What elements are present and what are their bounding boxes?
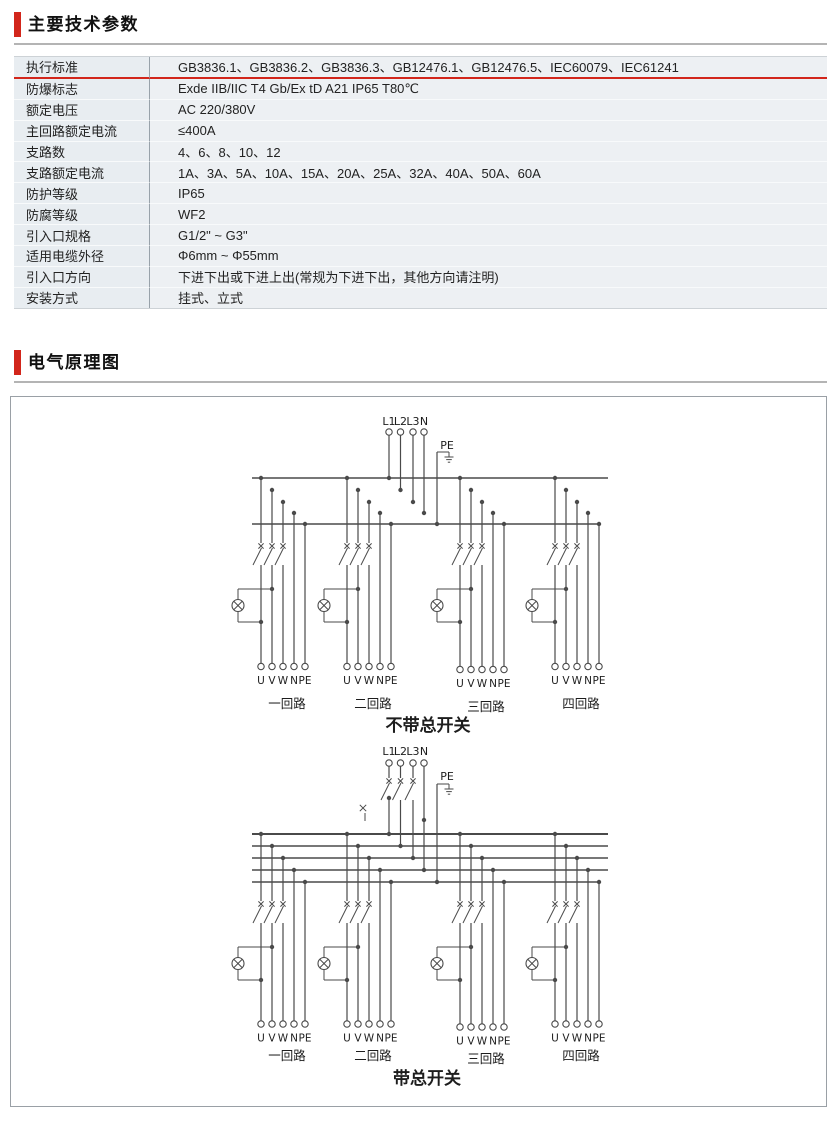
lamp-icon	[232, 958, 244, 970]
terminal-label: W	[572, 675, 583, 687]
junction-dot	[458, 620, 462, 624]
spec-row-8: 引入口规格G1/2" ~ G3"	[14, 225, 827, 246]
branch-circuit-1: UVWNPE一回路	[232, 476, 311, 711]
spec-row-4: 支路数4、6、8、10、12	[14, 142, 827, 163]
branch-caption: 四回路	[562, 696, 600, 711]
terminal-label: N	[584, 1033, 592, 1045]
terminal-circle	[457, 1024, 463, 1030]
terminal-label: W	[278, 1033, 289, 1045]
terminal-label: V	[268, 1033, 276, 1045]
section1-title: 主要技术参数	[28, 12, 139, 37]
terminal-label: W	[572, 1033, 583, 1045]
spec-value: G1/2" ~ G3"	[150, 225, 827, 246]
spec-label: 适用电缆外径	[14, 246, 150, 267]
spec-value: 下进下出或下进上出(常规为下进下出，其他方向请注明)	[150, 267, 827, 288]
terminal-circle	[302, 1021, 308, 1027]
datasheet-page: 主要技术参数 执行标准GB3836.1、GB3836.2、GB3836.3、GB…	[0, 0, 840, 1122]
terminal-circle	[501, 1024, 507, 1030]
breaker-switch-icon	[452, 834, 463, 1024]
terminal-label: U	[343, 675, 351, 687]
branch-circuit-2: UVWNPE二回路	[318, 476, 397, 711]
terminal-label: W	[477, 1036, 488, 1048]
schematic-panel: L1L2L3NPEUVWNPE一回路UVWNPE二回路UVWNPE三回路UVWN…	[10, 396, 827, 1107]
terminal-circle	[457, 666, 463, 672]
spec-label: 执行标准	[14, 57, 150, 79]
terminal-circle	[280, 1021, 286, 1027]
junction-dot	[411, 500, 415, 504]
pe-earth: PE	[435, 439, 454, 526]
terminal-label: U	[551, 675, 559, 687]
section2-title: 电气原理图	[28, 350, 121, 375]
lamp-icon	[526, 958, 538, 970]
spec-row-9: 适用电缆外径Φ6mm ~ Φ55mm	[14, 246, 827, 267]
spec-label: 额定电压	[14, 100, 150, 121]
breaker-switch-icon	[558, 490, 569, 663]
section2-rule	[14, 381, 827, 383]
main-breaker-switch-icon	[405, 766, 416, 858]
junction-dot	[422, 818, 426, 822]
breaker-switch-icon	[361, 502, 372, 663]
terminal-label: PE	[385, 675, 398, 687]
breaker-switch-icon	[264, 846, 275, 1021]
spec-row-5: 支路额定电流1A、3A、5A、10A、15A、20A、25A、32A、40A、5…	[14, 162, 827, 183]
main-switch-handle-icon	[360, 805, 366, 821]
spec-row-3: 主回路额定电流≤400A	[14, 121, 827, 142]
spec-value: WF2	[150, 204, 827, 225]
pe-earth: PE	[435, 770, 454, 884]
terminal-circle	[479, 666, 485, 672]
junction-dot	[435, 880, 439, 884]
terminal-circle	[258, 663, 264, 669]
breaker-switch-icon	[253, 478, 264, 663]
pe-label: PE	[440, 770, 454, 783]
spec-row-7: 防腐等级WF2	[14, 204, 827, 225]
breaker-switch-icon	[474, 502, 485, 666]
lamp-icon	[232, 600, 244, 612]
terminal-label: V	[467, 678, 475, 690]
terminal-circle	[574, 663, 580, 669]
spec-value: Exde IIB/IIC T4 Gb/Ex tD A21 IP65 T80℃	[150, 79, 827, 100]
lamp-icon	[431, 600, 443, 612]
spec-label: 引入口规格	[14, 225, 150, 246]
breaker-switch-icon	[253, 834, 264, 1021]
terminal-circle	[269, 663, 275, 669]
spec-value: 挂式、立式	[150, 288, 827, 308]
terminal-label: N	[290, 1033, 298, 1045]
terminal-label: PE	[498, 678, 511, 690]
branch-circuit-3: UVWNPE三回路	[431, 832, 510, 1066]
breaker-switch-icon	[350, 846, 361, 1021]
incoming-label: L3	[406, 415, 419, 428]
branch-circuit-4: UVWNPE四回路	[526, 476, 605, 711]
pe-label: PE	[440, 439, 454, 452]
terminal-label: U	[343, 1033, 351, 1045]
terminal-label: N	[290, 675, 298, 687]
terminal-circle	[410, 429, 416, 435]
indicator-lamp	[526, 587, 568, 624]
terminal-circle	[302, 663, 308, 669]
terminal-label: N	[489, 678, 497, 690]
terminal-label: PE	[593, 675, 606, 687]
junction-dot	[458, 978, 462, 982]
branch-caption: 二回路	[354, 1048, 392, 1063]
terminal-label: V	[354, 675, 362, 687]
spec-row-2: 额定电压AC 220/380V	[14, 100, 827, 121]
spec-value: IP65	[150, 183, 827, 204]
terminal-circle	[410, 760, 416, 766]
spec-table: 执行标准GB3836.1、GB3836.2、GB3836.3、GB12476.1…	[14, 56, 827, 309]
lamp-icon	[318, 600, 330, 612]
spec-label: 防爆标志	[14, 79, 150, 100]
terminal-circle	[563, 663, 569, 669]
terminal-circle	[468, 666, 474, 672]
branch-caption: 二回路	[354, 696, 392, 711]
junction-dot	[387, 796, 391, 800]
spec-label: 安装方式	[14, 288, 150, 308]
terminal-circle	[596, 663, 602, 669]
terminal-label: PE	[498, 1036, 511, 1048]
breaker-switch-icon	[339, 834, 350, 1021]
terminal-circle	[501, 666, 507, 672]
terminal-circle	[355, 1021, 361, 1027]
terminal-circle	[377, 1021, 383, 1027]
branch-circuit-2: UVWNPE二回路	[318, 832, 397, 1063]
diagram-caption: 不带总开关	[386, 715, 471, 736]
terminal-circle	[388, 1021, 394, 1027]
terminal-circle	[490, 666, 496, 672]
lamp-icon	[318, 958, 330, 970]
terminal-label: N	[584, 675, 592, 687]
junction-dot	[422, 868, 426, 872]
spec-label: 支路额定电流	[14, 162, 150, 183]
spec-label: 引入口方向	[14, 267, 150, 288]
spec-row-0: 执行标准GB3836.1、GB3836.2、GB3836.3、GB12476.1…	[14, 57, 827, 79]
terminal-circle	[386, 760, 392, 766]
breaker-switch-icon	[547, 834, 558, 1021]
indicator-lamp	[232, 945, 274, 982]
indicator-lamp	[232, 587, 274, 624]
branch-circuit-1: UVWNPE一回路	[232, 832, 311, 1063]
terminal-label: PE	[385, 1033, 398, 1045]
junction-dot	[259, 620, 263, 624]
earth-ground-icon	[445, 784, 454, 794]
terminal-label: U	[456, 678, 464, 690]
junction-dot	[345, 978, 349, 982]
junction-dot	[422, 511, 426, 515]
terminal-label: U	[257, 1033, 265, 1045]
terminal-circle	[377, 663, 383, 669]
terminal-label: W	[364, 1033, 375, 1045]
spec-value: ≤400A	[150, 121, 827, 142]
breaker-switch-icon	[452, 478, 463, 666]
spec-label: 主回路额定电流	[14, 121, 150, 142]
junction-dot	[553, 978, 557, 982]
terminal-circle	[468, 1024, 474, 1030]
terminal-label: PE	[299, 1033, 312, 1045]
indicator-lamp	[431, 587, 473, 624]
spec-value: GB3836.1、GB3836.2、GB3836.3、GB12476.1、GB1…	[150, 57, 827, 79]
indicator-lamp	[526, 945, 568, 982]
terminal-label: W	[477, 678, 488, 690]
junction-dot	[345, 620, 349, 624]
terminal-label: U	[551, 1033, 559, 1045]
breaker-switch-icon	[569, 502, 580, 663]
spec-value: 4、6、8、10、12	[150, 142, 827, 163]
terminal-label: U	[456, 1036, 464, 1048]
branch-caption: 一回路	[268, 696, 306, 711]
terminal-label: U	[257, 675, 265, 687]
junction-dot	[398, 488, 402, 492]
incoming-lines: L1L2L3N	[382, 415, 428, 515]
terminal-label: PE	[299, 675, 312, 687]
junction-dot	[411, 856, 415, 860]
terminal-circle	[479, 1024, 485, 1030]
section1-accent-bar	[14, 12, 21, 37]
junction-dot	[398, 844, 402, 848]
terminal-circle	[291, 663, 297, 669]
spec-value: Φ6mm ~ Φ55mm	[150, 246, 827, 267]
junction-dot	[553, 620, 557, 624]
breaker-switch-icon	[339, 478, 350, 663]
breaker-switch-icon	[474, 858, 485, 1024]
spec-value: 1A、3A、5A、10A、15A、20A、25A、32A、40A、50A、60A	[150, 162, 827, 183]
spec-label: 支路数	[14, 142, 150, 163]
terminal-circle	[355, 663, 361, 669]
breaker-switch-icon	[547, 478, 558, 663]
terminal-circle	[291, 1021, 297, 1027]
spec-label: 防护等级	[14, 183, 150, 204]
terminal-label: V	[268, 675, 276, 687]
incoming-label: L2	[394, 745, 407, 758]
breaker-switch-icon	[463, 846, 474, 1024]
terminal-label: V	[467, 1036, 475, 1048]
terminal-circle	[344, 1021, 350, 1027]
section1-rule	[14, 43, 827, 45]
section2-accent-bar	[14, 350, 21, 375]
spec-value: AC 220/380V	[150, 100, 827, 121]
incoming-label: L2	[394, 415, 407, 428]
junction-dot	[387, 832, 391, 836]
incoming-label: N	[420, 745, 428, 758]
breaker-switch-icon	[275, 502, 286, 663]
branch-caption: 一回路	[268, 1048, 306, 1063]
lamp-icon	[431, 958, 443, 970]
earth-ground-icon	[445, 452, 454, 462]
junction-dot	[387, 476, 391, 480]
breaker-switch-icon	[558, 846, 569, 1021]
spec-row-1: 防爆标志Exde IIB/IIC T4 Gb/Ex tD A21 IP65 T8…	[14, 79, 827, 100]
branch-circuit-4: UVWNPE四回路	[526, 832, 605, 1063]
terminal-label: W	[278, 675, 289, 687]
terminal-circle	[386, 429, 392, 435]
terminal-circle	[258, 1021, 264, 1027]
indicator-lamp	[318, 587, 360, 624]
terminal-circle	[574, 1021, 580, 1027]
diagram-no-main-switch: L1L2L3NPEUVWNPE一回路UVWNPE二回路UVWNPE三回路UVWN…	[232, 415, 608, 736]
main-breaker-switch-icon	[381, 766, 392, 834]
branch-caption: 三回路	[467, 1051, 505, 1066]
terminal-circle	[563, 1021, 569, 1027]
terminal-circle	[366, 663, 372, 669]
terminal-circle	[397, 760, 403, 766]
incoming-label: N	[420, 415, 428, 428]
lamp-icon	[526, 600, 538, 612]
terminal-label: V	[562, 1033, 570, 1045]
terminal-label: V	[354, 1033, 362, 1045]
branch-circuit-3: UVWNPE三回路	[431, 476, 510, 714]
junction-dot	[259, 978, 263, 982]
spec-row-10: 引入口方向下进下出或下进上出(常规为下进下出，其他方向请注明)	[14, 267, 827, 288]
incoming-label: L3	[406, 745, 419, 758]
indicator-lamp	[318, 945, 360, 982]
spec-label: 防腐等级	[14, 204, 150, 225]
diagram-with-main-switch: L1L2L3NPEUVWNPE一回路UVWNPE二回路UVWNPE三回路UVWN…	[232, 745, 608, 1089]
indicator-lamp	[431, 945, 473, 982]
terminal-label: N	[376, 1033, 384, 1045]
terminal-circle	[388, 663, 394, 669]
breaker-switch-icon	[264, 490, 275, 663]
diagram-caption: 带总开关	[393, 1068, 461, 1089]
terminal-circle	[280, 663, 286, 669]
terminal-circle	[421, 429, 427, 435]
branch-caption: 三回路	[467, 699, 505, 714]
breaker-switch-icon	[463, 490, 474, 666]
breaker-switch-icon	[350, 490, 361, 663]
terminal-circle	[269, 1021, 275, 1027]
spec-row-11: 安装方式挂式、立式	[14, 288, 827, 308]
terminal-circle	[552, 663, 558, 669]
terminal-circle	[585, 663, 591, 669]
terminal-label: N	[489, 1036, 497, 1048]
terminal-circle	[366, 1021, 372, 1027]
schematic-svg: L1L2L3NPEUVWNPE一回路UVWNPE二回路UVWNPE三回路UVWN…	[11, 397, 826, 1106]
spec-row-6: 防护等级IP65	[14, 183, 827, 204]
terminal-circle	[585, 1021, 591, 1027]
terminal-circle	[596, 1021, 602, 1027]
terminal-circle	[397, 429, 403, 435]
junction-dot	[435, 522, 439, 526]
terminal-circle	[421, 760, 427, 766]
terminal-label: N	[376, 675, 384, 687]
terminal-label: V	[562, 675, 570, 687]
terminal-circle	[552, 1021, 558, 1027]
terminal-circle	[490, 1024, 496, 1030]
terminal-label: W	[364, 675, 375, 687]
terminal-label: PE	[593, 1033, 606, 1045]
terminal-circle	[344, 663, 350, 669]
incoming-lines: L1L2L3N	[381, 745, 428, 872]
branch-caption: 四回路	[562, 1048, 600, 1063]
